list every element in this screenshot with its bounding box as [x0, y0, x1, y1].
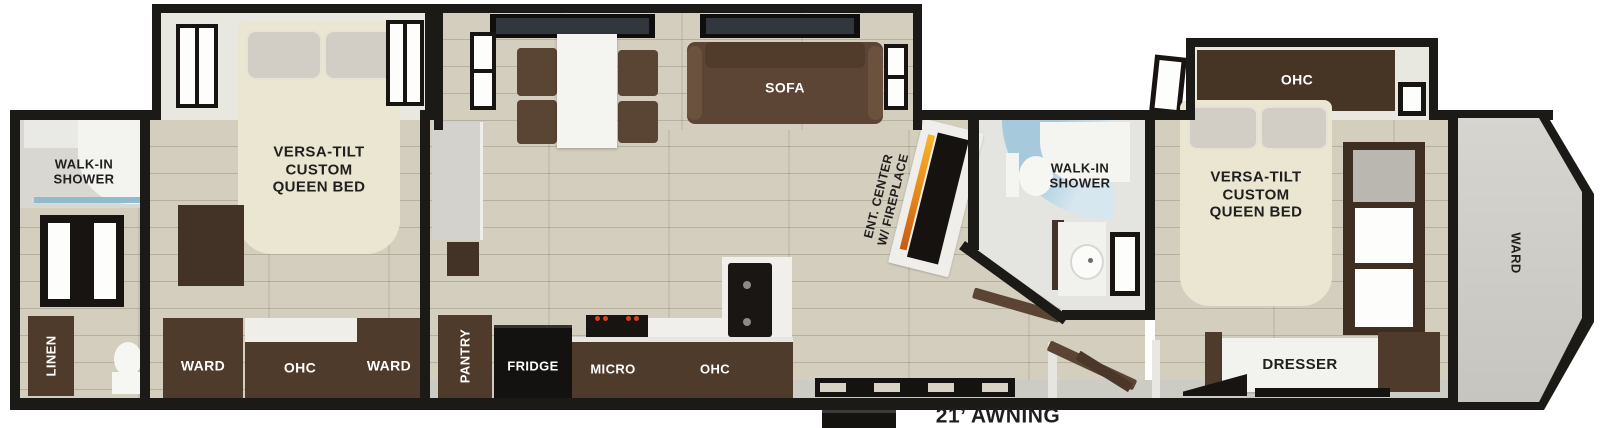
bedroom2-side-cabinet	[178, 205, 244, 286]
front-window-pane-2	[1355, 269, 1413, 327]
vanity-sink	[1070, 244, 1104, 280]
entry-steps	[815, 378, 1015, 397]
rear-shower-ledge	[24, 120, 78, 148]
kitchen-ohc-label: OHC	[700, 361, 730, 376]
top-wall-rear	[10, 110, 161, 120]
front-slideout	[1186, 38, 1438, 120]
kitchen-closet	[432, 122, 483, 240]
stove-knob-1	[595, 316, 600, 321]
mid-toilet-tank	[1006, 153, 1019, 197]
bedroom2-ohc-counter	[245, 318, 357, 342]
mid-toilet-bowl	[1019, 156, 1053, 196]
front-window-pane-1	[1355, 208, 1413, 263]
bottom-wall	[10, 398, 1460, 410]
bedroom2-ward-right-label: WARD	[367, 358, 411, 375]
bedroom2-ward-left-label: WARD	[181, 358, 225, 375]
bedroom2-ohc-label: OHC	[284, 360, 316, 377]
wall-hall-frontbedroom	[1145, 110, 1155, 318]
mid-bath-window	[1110, 232, 1140, 296]
dresser-label: DRESSER	[1262, 356, 1337, 374]
micro-label: MICRO	[590, 361, 635, 376]
front-window-unit-top	[1353, 150, 1415, 202]
wall-rearbath-bedroom2	[140, 110, 150, 410]
bedroom2-slideout	[152, 4, 434, 120]
kitchen-faucet-1	[743, 281, 751, 289]
nose-ward-label: WARD	[1508, 232, 1523, 273]
stove-knob-3	[626, 316, 631, 321]
floorplan: WALK-IN SHOWER LINEN VERSA-TILT CUSTOM Q…	[0, 0, 1600, 428]
kitchen-sink-unit	[728, 263, 772, 337]
linen-label: LINEN	[43, 336, 58, 377]
vanity-sink-drain	[1088, 258, 1093, 263]
rear-toilet-tank	[112, 372, 142, 394]
pantry-label: PANTRY	[457, 329, 472, 383]
living-slideout	[434, 4, 922, 130]
dresser-side-right	[1378, 332, 1440, 392]
exterior-step	[822, 410, 896, 428]
awning-label: 21’ AWNING	[936, 405, 1060, 428]
stove-knob-4	[634, 316, 639, 321]
front-bed-label: VERSA-TILT CUSTOM QUEEN BED	[1210, 168, 1303, 221]
bedroom2-bed-label: VERSA-TILT CUSTOM QUEEN BED	[273, 143, 366, 196]
kitchen-faucet-2	[743, 318, 751, 326]
rear-window-pane-right	[94, 223, 116, 299]
fridge-label: FRIDGE	[507, 358, 559, 373]
rear-shower-label: WALK-IN SHOWER	[54, 157, 115, 188]
mid-shower-label: WALK-IN SHOWER	[1050, 161, 1111, 192]
midbath-bottom-wall	[1062, 310, 1155, 320]
rear-shower-glass	[34, 197, 140, 203]
wall-bedroom2-living	[420, 110, 430, 410]
rear-window-pane-left	[48, 223, 70, 299]
stove-knob-2	[603, 316, 608, 321]
rear-wall	[10, 110, 20, 410]
kitchen-upper-cabinet	[447, 242, 479, 276]
dresser-tv-strip	[1255, 388, 1390, 397]
bedroom-entry-stub	[1152, 340, 1160, 398]
rear-toilet-bowl	[114, 342, 142, 376]
midbath-left-wall	[968, 110, 979, 250]
